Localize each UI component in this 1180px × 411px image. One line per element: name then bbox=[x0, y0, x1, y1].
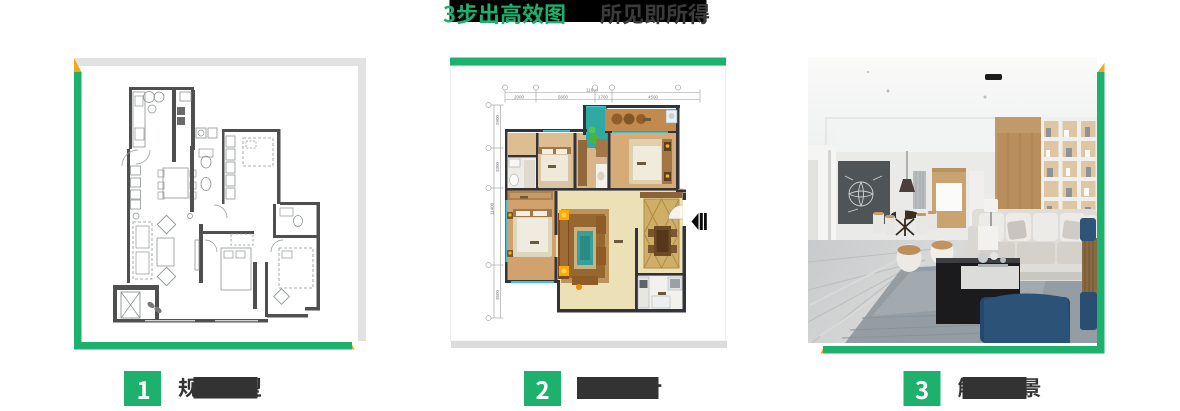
svg-text:1700: 1700 bbox=[598, 95, 609, 100]
svg-text:2000: 2000 bbox=[514, 95, 525, 100]
svg-text:2900: 2900 bbox=[495, 114, 500, 125]
svg-text:3500: 3500 bbox=[495, 289, 500, 300]
svg-text:5600: 5600 bbox=[558, 95, 569, 100]
svg-text:11400: 11400 bbox=[490, 202, 495, 215]
svg-text:3300: 3300 bbox=[495, 161, 500, 172]
svg-text:4500: 4500 bbox=[648, 95, 659, 100]
